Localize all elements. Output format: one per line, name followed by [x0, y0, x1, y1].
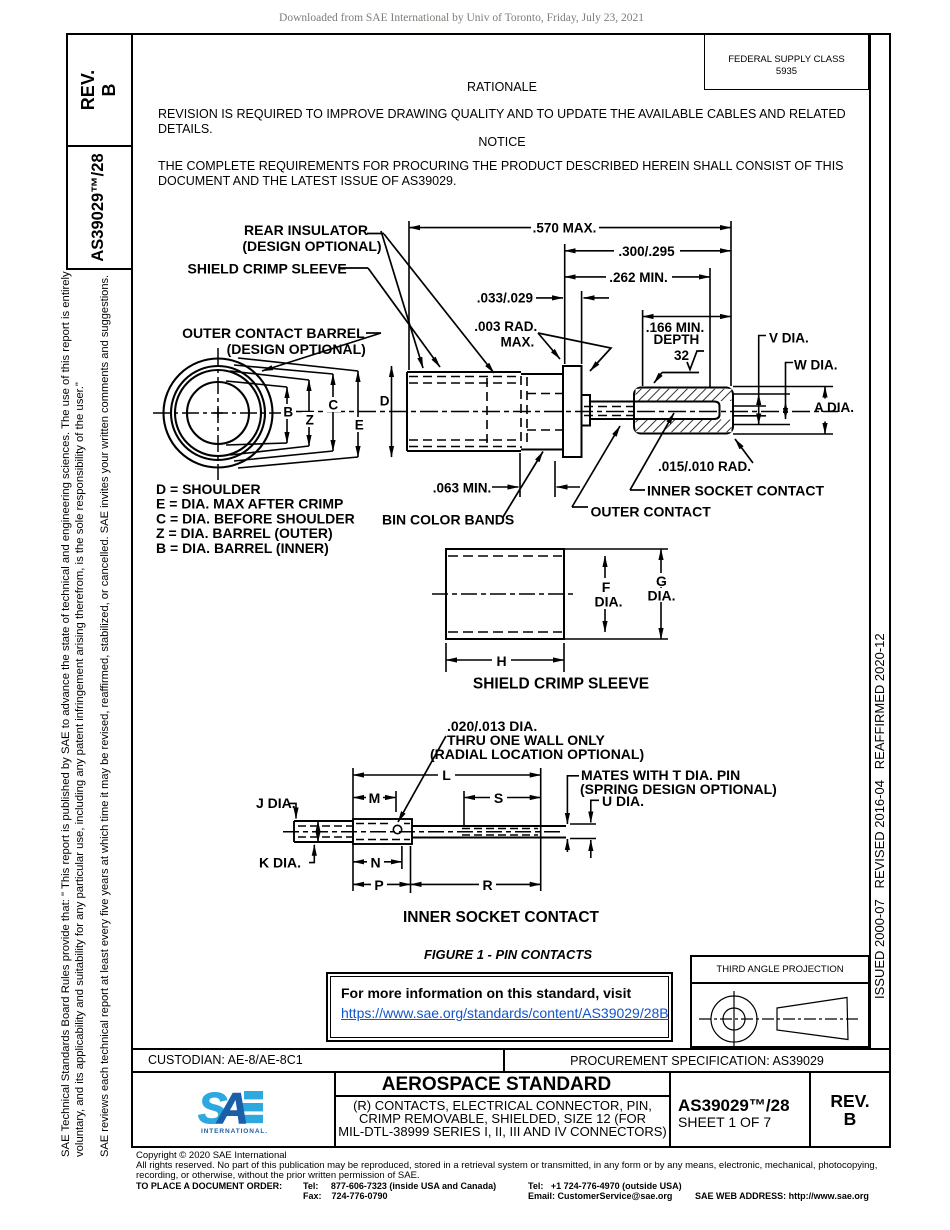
svg-text:W DIA.: W DIA. [794, 358, 838, 373]
svg-text:(DESIGN OPTIONAL): (DESIGN OPTIONAL) [227, 341, 366, 357]
svg-text:.015/.010 RAD.: .015/.010 RAD. [658, 459, 751, 474]
svg-text:.063 MIN.: .063 MIN. [433, 480, 492, 495]
svg-text:Z = DIA. BARREL (OUTER): Z = DIA. BARREL (OUTER) [156, 525, 333, 541]
svg-text:SHIELD CRIMP SLEEVE: SHIELD CRIMP SLEEVE [188, 261, 347, 277]
svg-text:N: N [370, 854, 380, 870]
svg-text:(RADIAL LOCATION OPTIONAL): (RADIAL LOCATION OPTIONAL) [430, 746, 644, 762]
svg-text:V DIA.: V DIA. [769, 331, 809, 346]
svg-text:K DIA.: K DIA. [259, 855, 301, 871]
svg-text:A: A [216, 1088, 249, 1133]
svg-text:D = SHOULDER: D = SHOULDER [156, 481, 261, 497]
svg-text:32: 32 [674, 348, 689, 363]
svg-text:S: S [494, 790, 503, 806]
svg-text:INNER SOCKET CONTACT: INNER SOCKET CONTACT [403, 909, 600, 926]
svg-text:DIA.: DIA. [595, 594, 623, 610]
svg-text:B: B [283, 405, 293, 420]
svg-text:D: D [380, 393, 390, 408]
svg-text:REAR INSULATOR: REAR INSULATOR [244, 222, 368, 238]
svg-text:OUTER CONTACT: OUTER CONTACT [591, 504, 712, 520]
svg-text:E = DIA. MAX AFTER CRIMP: E = DIA. MAX AFTER CRIMP [156, 496, 343, 512]
svg-text:M: M [369, 790, 381, 806]
svg-text:DEPTH: DEPTH [654, 332, 700, 347]
svg-text:H: H [496, 653, 506, 669]
svg-text:P: P [374, 877, 383, 893]
svg-text:(DESIGN OPTIONAL): (DESIGN OPTIONAL) [242, 238, 381, 254]
svg-text:.570 MAX.: .570 MAX. [533, 221, 597, 236]
svg-text:FIGURE 1 - PIN CONTACTS: FIGURE 1 - PIN CONTACTS [424, 947, 592, 962]
svg-text:E: E [355, 418, 364, 433]
svg-text:C: C [328, 398, 338, 413]
svg-text:A DIA.: A DIA. [814, 400, 854, 415]
svg-text:INNER SOCKET CONTACT: INNER SOCKET CONTACT [647, 483, 825, 499]
svg-text:MAX.: MAX. [501, 335, 535, 350]
svg-text:INTERNATIONAL.: INTERNATIONAL. [201, 1128, 268, 1135]
svg-text:BIN COLOR BANDS: BIN COLOR BANDS [382, 512, 514, 528]
svg-text:L: L [442, 767, 451, 783]
svg-text:U DIA.: U DIA. [602, 793, 644, 809]
svg-text:OUTER CONTACT BARREL: OUTER CONTACT BARREL [182, 325, 365, 341]
svg-text:SHIELD CRIMP SLEEVE: SHIELD CRIMP SLEEVE [473, 676, 649, 693]
svg-text:J DIA.: J DIA. [256, 795, 296, 811]
svg-text:.300/.295: .300/.295 [618, 244, 675, 259]
svg-text:.033/.029: .033/.029 [477, 290, 533, 305]
svg-text:R: R [482, 877, 492, 893]
svg-text:B = DIA. BARREL (INNER): B = DIA. BARREL (INNER) [156, 540, 329, 556]
svg-text:C = DIA. BEFORE SHOULDER: C = DIA. BEFORE SHOULDER [156, 510, 355, 526]
svg-text:.003 RAD.: .003 RAD. [474, 319, 537, 334]
svg-text:Z: Z [306, 413, 314, 428]
svg-text:.262 MIN.: .262 MIN. [609, 270, 668, 285]
svg-text:DIA.: DIA. [648, 588, 676, 604]
